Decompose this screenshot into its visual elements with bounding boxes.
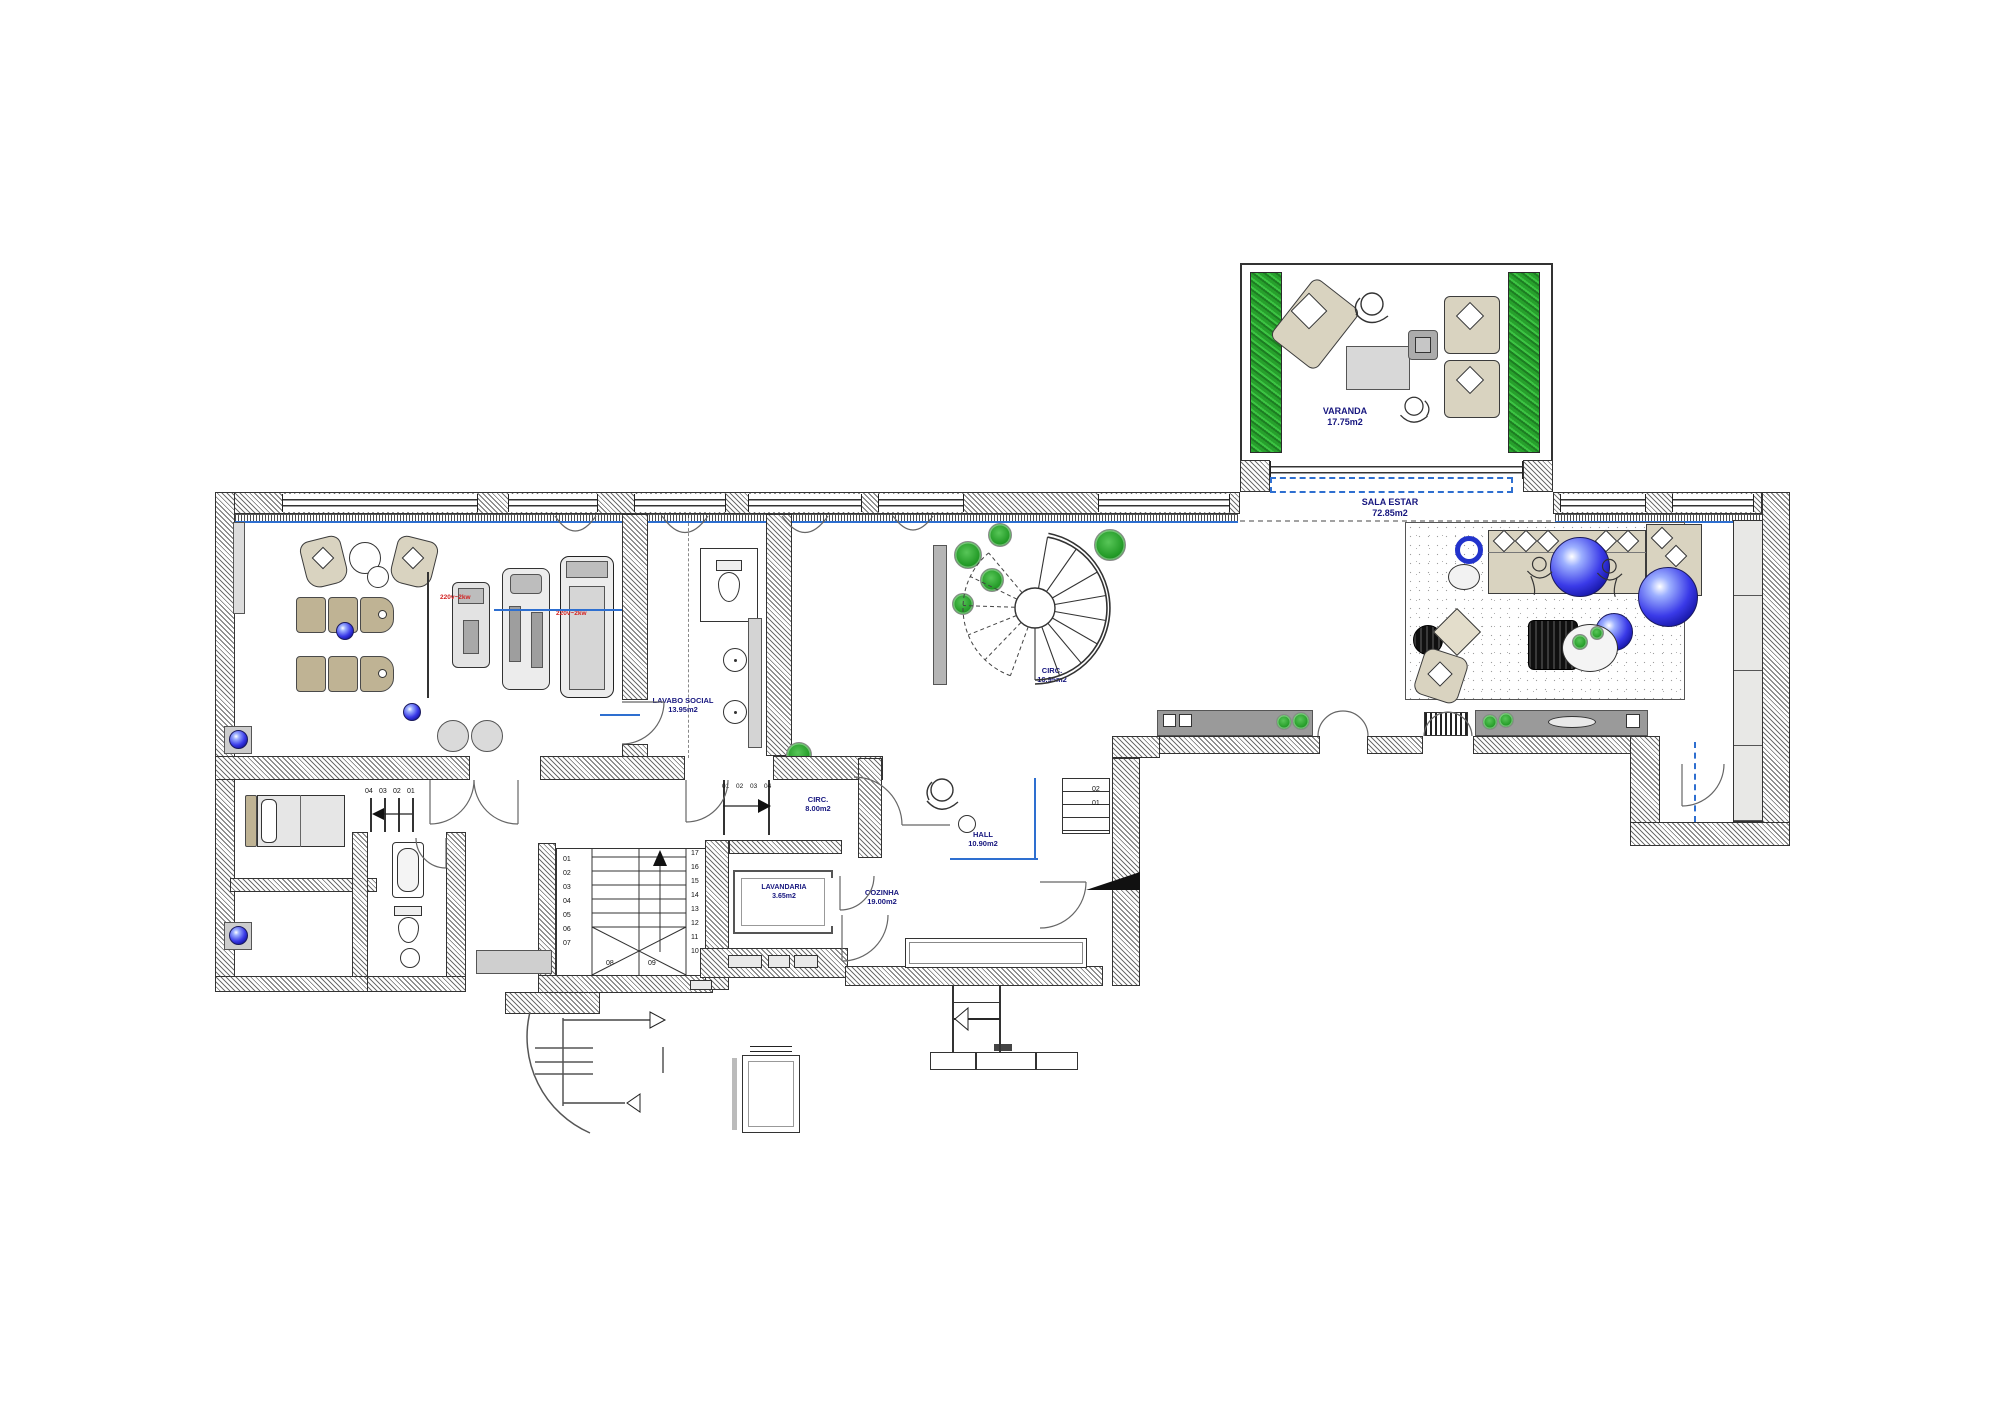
porch-shelf: [750, 1046, 792, 1052]
wall-bath-left: [352, 832, 368, 992]
kitchen-counter-inner: [909, 942, 1083, 964]
bed-blanket-line: [300, 795, 301, 847]
toilet2-bowl: [398, 917, 419, 943]
main-stair-num: 11: [691, 934, 698, 941]
sala-platter: [1448, 564, 1480, 590]
insulation-strip-left: [235, 514, 1238, 521]
window-sala-right-2: [1672, 494, 1754, 512]
sala-estar-area: 72.85m2: [1295, 508, 1485, 519]
person-hall: [927, 779, 958, 809]
elliptical-pedal-right: [531, 612, 543, 668]
wall-wing-bottom: [215, 976, 368, 992]
sala-ring-decor: [1455, 536, 1483, 564]
bedroom-step-num: 01: [407, 788, 415, 795]
main-stair-num: 16: [691, 864, 699, 871]
plant-circ-2: [980, 568, 1004, 592]
wall-veranda-pier-left: [1240, 460, 1270, 492]
blue-sphere-large-1: [1550, 537, 1610, 597]
insulation-strip-right: [1555, 514, 1762, 521]
plant-sideboard-3: [1482, 714, 1498, 730]
wall-hall-left: [858, 758, 882, 858]
cozinha-name: COZINHA: [840, 888, 924, 897]
ext-stair-tread-1: [953, 1002, 1000, 1003]
sala-estar-label: SALA ESTAR 72.85m2: [1295, 497, 1485, 520]
hall-decor-swirl: [958, 815, 976, 833]
sideboard-left-box-1: [1163, 714, 1176, 727]
spiral-staircase: [963, 533, 1110, 684]
wall-lavandaria-top: [729, 840, 842, 854]
window-gym: [282, 494, 478, 512]
exercise-bike-seat: [463, 620, 479, 654]
lounger-2-seg-2: [328, 656, 358, 692]
wall-sala-bottom-connector: [1112, 736, 1160, 758]
plant-circ-5: [1094, 529, 1126, 561]
plant-sideboard-2: [1292, 712, 1310, 730]
wall-corridor-2: [540, 756, 685, 780]
lounger-1-seg-3: [360, 597, 394, 633]
wall-sala-bottom-3: [1473, 736, 1653, 754]
lavabo-label: LAVABO SOCIAL 13.95m2: [640, 696, 726, 715]
landing-divider-1: [975, 1052, 977, 1070]
hall-blue-line-v: [1034, 778, 1036, 860]
sideboard-bowl: [1548, 716, 1596, 728]
gym-pilaster: [233, 522, 245, 614]
lavabo-sink-1-drain: [734, 659, 737, 662]
lavabo-name: LAVABO SOCIAL: [640, 696, 726, 705]
stair-landing-gray: [476, 950, 552, 974]
sideboard-left-box-2: [1179, 714, 1192, 727]
circ-hall-label: CIRC. 8.00m2: [786, 795, 850, 814]
hall-small-stair: [1062, 778, 1110, 834]
lounger-1-ring: [378, 610, 387, 619]
wall-hall-right: [1112, 758, 1140, 986]
hall-step-num: 01: [1092, 800, 1100, 807]
window-circ-2: [878, 494, 964, 512]
gym-sphere: [336, 622, 354, 640]
lavabo-area: 13.95m2: [640, 705, 726, 714]
veranda-planter-right: [1508, 272, 1540, 453]
circ-hall-name: CIRC.: [786, 795, 850, 804]
wall-corridor-1: [215, 756, 470, 780]
hall-name: HALL: [944, 830, 1022, 839]
door-arc-sala-double: [1318, 711, 1368, 736]
window-gym-2: [508, 494, 598, 512]
lavabo-counter: [748, 618, 762, 748]
blue-line-top-left: [235, 521, 1238, 523]
lavandaria-name: LAVANDARIA: [744, 884, 824, 893]
wall-right: [1762, 492, 1790, 846]
plant-circ-1: [954, 541, 982, 569]
main-stair-num: 12: [691, 920, 699, 927]
gym-divider-line: [427, 572, 429, 698]
wall-light-sphere-1: [229, 730, 248, 749]
plant-sideboard-1: [1276, 714, 1292, 730]
sala-estar-name: SALA ESTAR: [1295, 497, 1485, 508]
veranda-ottoman: [1346, 346, 1410, 390]
wall-veranda-pier-right: [1523, 460, 1553, 492]
utility-panel-2: [768, 955, 790, 968]
toilet2-tank: [394, 906, 422, 916]
step-line-2: [384, 798, 386, 832]
porch-bench: [994, 1044, 1012, 1051]
main-stair-num: 03: [563, 884, 571, 891]
utility-panel-3: [794, 955, 818, 968]
blue-line-gym-short: [600, 714, 640, 716]
gym-round-table-2: [367, 566, 389, 588]
porch-console-inner: [748, 1061, 794, 1127]
lavabo-centerline: [688, 518, 689, 758]
wall-right-wing-left: [1630, 736, 1660, 832]
bedroom-step-num: 03: [379, 788, 387, 795]
bed-pillow: [261, 799, 277, 843]
veranda-side-table-top: [1415, 337, 1431, 353]
lavandaria-label: LAVANDARIA 3.65m2: [744, 884, 824, 902]
sala-wardrobe: [1733, 520, 1763, 822]
wall-stair-bottom: [538, 975, 713, 993]
wall-sala-bottom-1: [1150, 736, 1320, 754]
lounger-1-seg-1: [296, 597, 326, 633]
spiral-treads-solid: [1035, 537, 1106, 680]
exercise-ball-1: [437, 720, 469, 752]
floor-plan-canvas: VARANDA 17.75m2 SALA ESTAR 72.85m2: [0, 0, 2000, 1414]
bed-headboard: [245, 795, 257, 847]
hall-label: HALL 10.90m2: [944, 830, 1022, 849]
circ-step-num: 01: [722, 784, 729, 791]
bedroom-step-num: 02: [393, 788, 401, 795]
main-stair-num: 15: [691, 878, 699, 885]
window-circ-1: [748, 494, 862, 512]
utility-panel-1: [728, 955, 762, 968]
circ-stair-label: CIRC. 16.95m2: [1010, 666, 1094, 685]
hall-blue-line-h: [950, 858, 1038, 860]
lavabo-sink-2-drain: [734, 711, 737, 714]
elliptical-console: [510, 574, 542, 594]
corridor-sphere: [403, 703, 421, 721]
sala-opening-blue-dashed: [1270, 477, 1513, 493]
wall-bath-bottom: [352, 976, 466, 992]
window-lavabo: [634, 494, 726, 512]
bath-sink: [400, 948, 420, 968]
main-stair-num: 01: [563, 856, 571, 863]
wall-light-sphere-2: [229, 926, 248, 945]
plant-sideboard-4: [1498, 712, 1514, 728]
circ-stair-name: CIRC.: [1010, 666, 1094, 675]
main-stair-num: 14: [691, 892, 699, 899]
ext-curved-stair-arc: [527, 1012, 590, 1133]
wall-lavabo-right: [766, 514, 792, 756]
circ-step-num: 04: [764, 784, 771, 791]
ext-curved-arrow-bottom-head: [627, 1094, 640, 1112]
wall-sala-bottom-2: [1367, 736, 1423, 754]
porch-rug-strip: [732, 1058, 737, 1130]
main-stair-num: 17: [691, 850, 699, 857]
circ-step-num: 03: [750, 784, 757, 791]
sideboard-right-box: [1626, 714, 1640, 728]
treadmill-console: [566, 561, 608, 578]
veranda-label: VARANDA 17.75m2: [1298, 406, 1392, 429]
hall-area: 10.90m2: [944, 839, 1022, 848]
door-arc-corridor-double-right: [474, 780, 518, 824]
window-sala-left: [1098, 494, 1230, 512]
exterior-curved-stair: [527, 1012, 663, 1133]
main-stair-num: 06: [563, 926, 571, 933]
toilet-tank: [716, 560, 742, 571]
main-stair-num: 02: [563, 870, 571, 877]
linework-overlay: [0, 0, 2000, 1414]
wall-bath-right: [446, 832, 466, 992]
door-arc-hall-bottom: [1040, 882, 1086, 928]
wall-gym-lavabo: [622, 514, 648, 700]
cozinha-label: COZINHA 19.00m2: [840, 888, 924, 907]
lounger-2-seg-3: [360, 656, 394, 692]
plant-table-2: [1590, 626, 1604, 640]
circ-wall-strip: [933, 545, 947, 685]
lavandaria-counter-opening: [829, 878, 837, 926]
plant-circ-3: [952, 593, 974, 615]
treadmill-deck: [569, 586, 605, 690]
ext-curved-stair-treads: [535, 1018, 663, 1106]
bookshelf-row: [1424, 712, 1468, 736]
wall-right-wing-bottom: [1630, 822, 1790, 846]
veranda-name: VARANDA: [1298, 406, 1392, 417]
elliptical-pedal-left: [509, 606, 521, 662]
utility-panel-4: [690, 980, 712, 990]
ext-stair-tread-2: [953, 1018, 1000, 1020]
main-stair-num: 10: [691, 948, 699, 955]
main-stair-winder: 08: [606, 960, 614, 967]
circ-hall-area: 8.00m2: [786, 804, 850, 813]
landing-divider-2: [1035, 1052, 1037, 1070]
spiral-center-column: [1015, 588, 1055, 628]
right-wing-blue-dashed: [1694, 742, 1697, 822]
main-stair-num: 13: [691, 906, 699, 913]
step-line-3: [398, 798, 400, 832]
blue-sphere-large-2: [1638, 567, 1698, 627]
exercise-ball-2: [471, 720, 503, 752]
circ-stair-area: 16.95m2: [1010, 675, 1094, 684]
main-stair-winder: 09: [648, 960, 656, 967]
main-stair-num: 05: [563, 912, 571, 919]
main-stair-num: 07: [563, 940, 571, 947]
plant-table-1: [1572, 634, 1588, 650]
power-label-right: 220v~2kw: [556, 610, 587, 617]
main-stair-box: [556, 848, 706, 976]
wall-kitchen-bottom: [845, 966, 1103, 986]
door-arc-right-wing: [1682, 764, 1724, 806]
circ-step-num: 02: [736, 784, 743, 791]
exterior-landing: [930, 1052, 1078, 1070]
bathtub-inner: [397, 848, 419, 892]
door-arc-entry: [842, 915, 888, 961]
window-sala-right-1: [1560, 494, 1646, 512]
step-line-4: [412, 798, 414, 832]
bedroom-arrow-head: [372, 808, 384, 820]
veranda-planter-left: [1250, 272, 1282, 453]
wall-stair-step-down: [505, 992, 600, 1014]
door-arc-corridor-double-left: [430, 780, 474, 824]
cozinha-area: 19.00m2: [840, 897, 924, 906]
hall-step-num: 02: [1092, 786, 1100, 793]
lounger-2-seg-1: [296, 656, 326, 692]
lounger-2-ring: [378, 669, 387, 678]
blue-line-gym: [494, 609, 622, 611]
lavandaria-area: 3.65m2: [744, 893, 824, 902]
power-label-left: 220v~2kw: [440, 594, 471, 601]
plant-circ-4: [988, 523, 1012, 547]
veranda-area: 17.75m2: [1298, 417, 1392, 428]
bedroom-step-num: 04: [365, 788, 373, 795]
ext-curved-arrow-top-head: [650, 1012, 665, 1028]
main-stair-num: 04: [563, 898, 571, 905]
step-line-1: [370, 798, 372, 832]
